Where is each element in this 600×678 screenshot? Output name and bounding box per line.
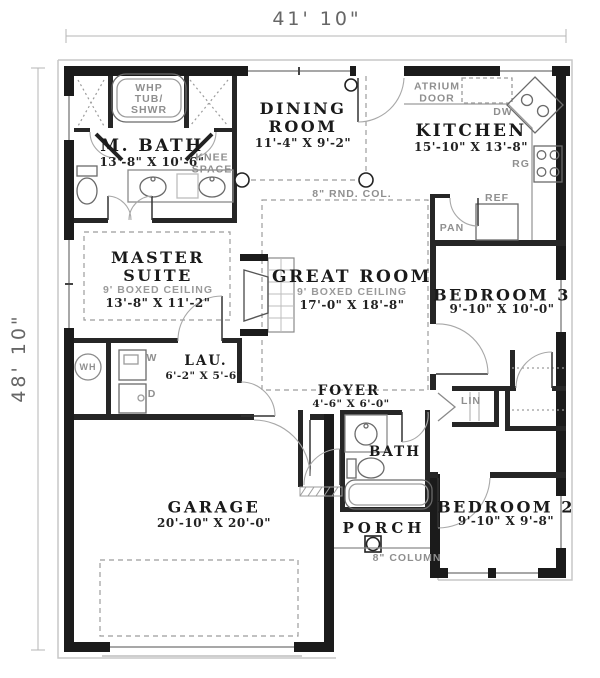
room-dims-dining: 11'-4" X 9'-2" xyxy=(255,136,351,150)
great-room-ceiling-note: 9' BOXED CEILING xyxy=(297,286,407,298)
room-label-bath: BATH xyxy=(369,444,421,460)
floor-plan-page: 41' 10" 48' 10" M. BATH 13'-8" X 10'-6" … xyxy=(0,0,600,678)
room-dims-garage: 20'-10" X 20'-0" xyxy=(157,516,271,530)
round-column-note: 8" RND. COL. xyxy=(312,188,391,200)
room-dims-bedroom-2: 9'-10" X 9'-8" xyxy=(458,514,554,528)
room-label-foyer: FOYER xyxy=(318,383,381,399)
room-dims-great-room: 17'-0" X 18'-8" xyxy=(299,298,404,312)
dryer-label: D xyxy=(148,388,157,400)
master-ceiling-note: 9' BOXED CEILING xyxy=(103,284,213,296)
room-label-master-suite: MASTER SUITE xyxy=(102,249,214,285)
pantry-label: PAN xyxy=(440,222,464,234)
room-label-garage: GARAGE xyxy=(168,498,261,517)
overall-height-dimension: 48' 10" xyxy=(8,313,30,402)
room-label-kitchen: KITCHEN xyxy=(416,121,527,141)
water-heater-label: WH xyxy=(80,362,97,372)
dishwasher-label: DW xyxy=(493,106,513,118)
room-dims-master: 13'-8" X 11'-2" xyxy=(105,296,210,310)
atrium-door-label: ATRIUM DOOR xyxy=(405,81,469,105)
refrigerator-label: REF xyxy=(485,192,509,204)
room-dims-kitchen: 15'-10" X 13'-8" xyxy=(414,140,528,154)
knee-space-label: KNEE SPACE xyxy=(187,152,237,176)
room-dims-bedroom-3: 9'-10" X 10'-0" xyxy=(449,302,554,316)
whirlpool-tub-label: SHWR xyxy=(131,104,167,116)
room-label-great-room: GREAT ROOM xyxy=(272,267,432,287)
range-label: RG xyxy=(512,158,530,170)
linen-closet-label: LIN xyxy=(461,395,481,407)
room-label-laundry: LAU. xyxy=(184,353,227,369)
porch-column-note: 8" COLUMN xyxy=(373,552,442,564)
washer-label: W xyxy=(147,352,158,364)
room-dims-foyer: 4'-6" X 6'-0" xyxy=(312,398,389,410)
room-label-porch: PORCH xyxy=(343,519,426,537)
room-label-dining: DINING ROOM xyxy=(251,100,355,136)
room-dims-laundry: 6'-2" X 5'-6" xyxy=(165,370,242,382)
overall-width-dimension: 41' 10" xyxy=(272,8,361,30)
